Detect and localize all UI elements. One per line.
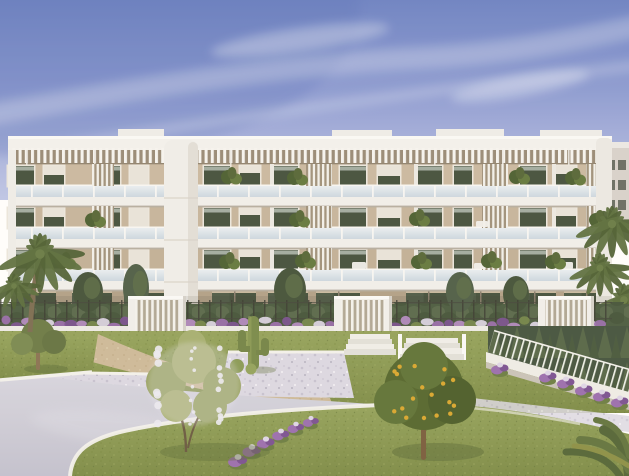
apartment-complex-render <box>0 0 629 476</box>
sunset-tint <box>0 0 629 476</box>
screenshot-canvas <box>0 0 629 476</box>
